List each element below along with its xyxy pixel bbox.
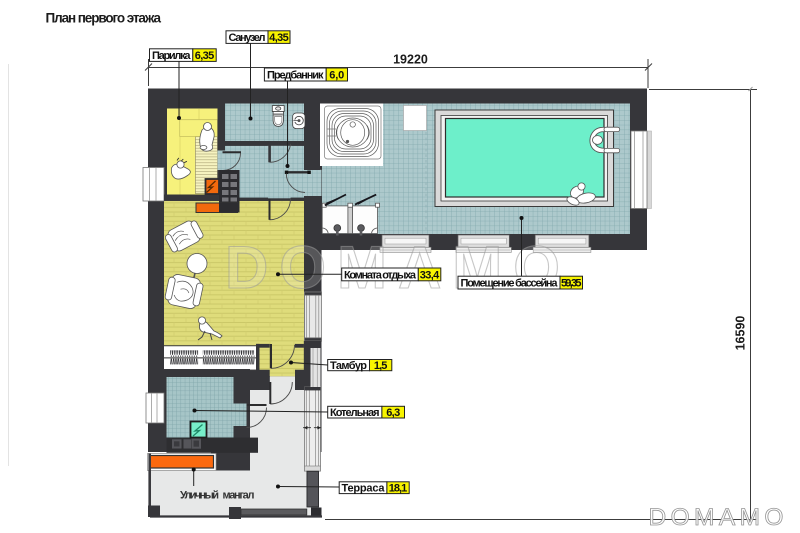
svg-text:16590: 16590 [734, 316, 748, 351]
svg-text:6,0: 6,0 [329, 69, 344, 81]
svg-text:Предбанник: Предбанник [267, 69, 324, 81]
svg-text:Уличный: Уличный [180, 490, 219, 502]
svg-text:Санузел: Санузел [229, 32, 266, 44]
svg-text:6,35: 6,35 [195, 50, 215, 62]
svg-text:Помещение бассейна: Помещение бассейна [461, 278, 559, 290]
svg-text:4,35: 4,35 [269, 32, 289, 44]
svg-text:33,4: 33,4 [420, 269, 440, 281]
svg-text:Терраса: Терраса [342, 482, 386, 494]
svg-text:Комната отдыха: Комната отдыха [344, 269, 417, 281]
svg-text:59,35: 59,35 [561, 278, 582, 290]
svg-text:6,3: 6,3 [386, 407, 400, 419]
svg-text:DOMAMO: DOMAMO [649, 504, 788, 531]
svg-text:План первого этажа: План первого этажа [46, 11, 162, 26]
svg-text:Котельная: Котельная [330, 407, 380, 419]
svg-text:19220: 19220 [393, 53, 428, 67]
svg-text:1,5: 1,5 [374, 360, 388, 372]
svg-text:18,1: 18,1 [389, 482, 408, 494]
svg-text:мангал: мангал [223, 490, 255, 502]
svg-text:Тамбур: Тамбур [330, 360, 367, 372]
svg-text:Парилка: Парилка [152, 50, 191, 62]
